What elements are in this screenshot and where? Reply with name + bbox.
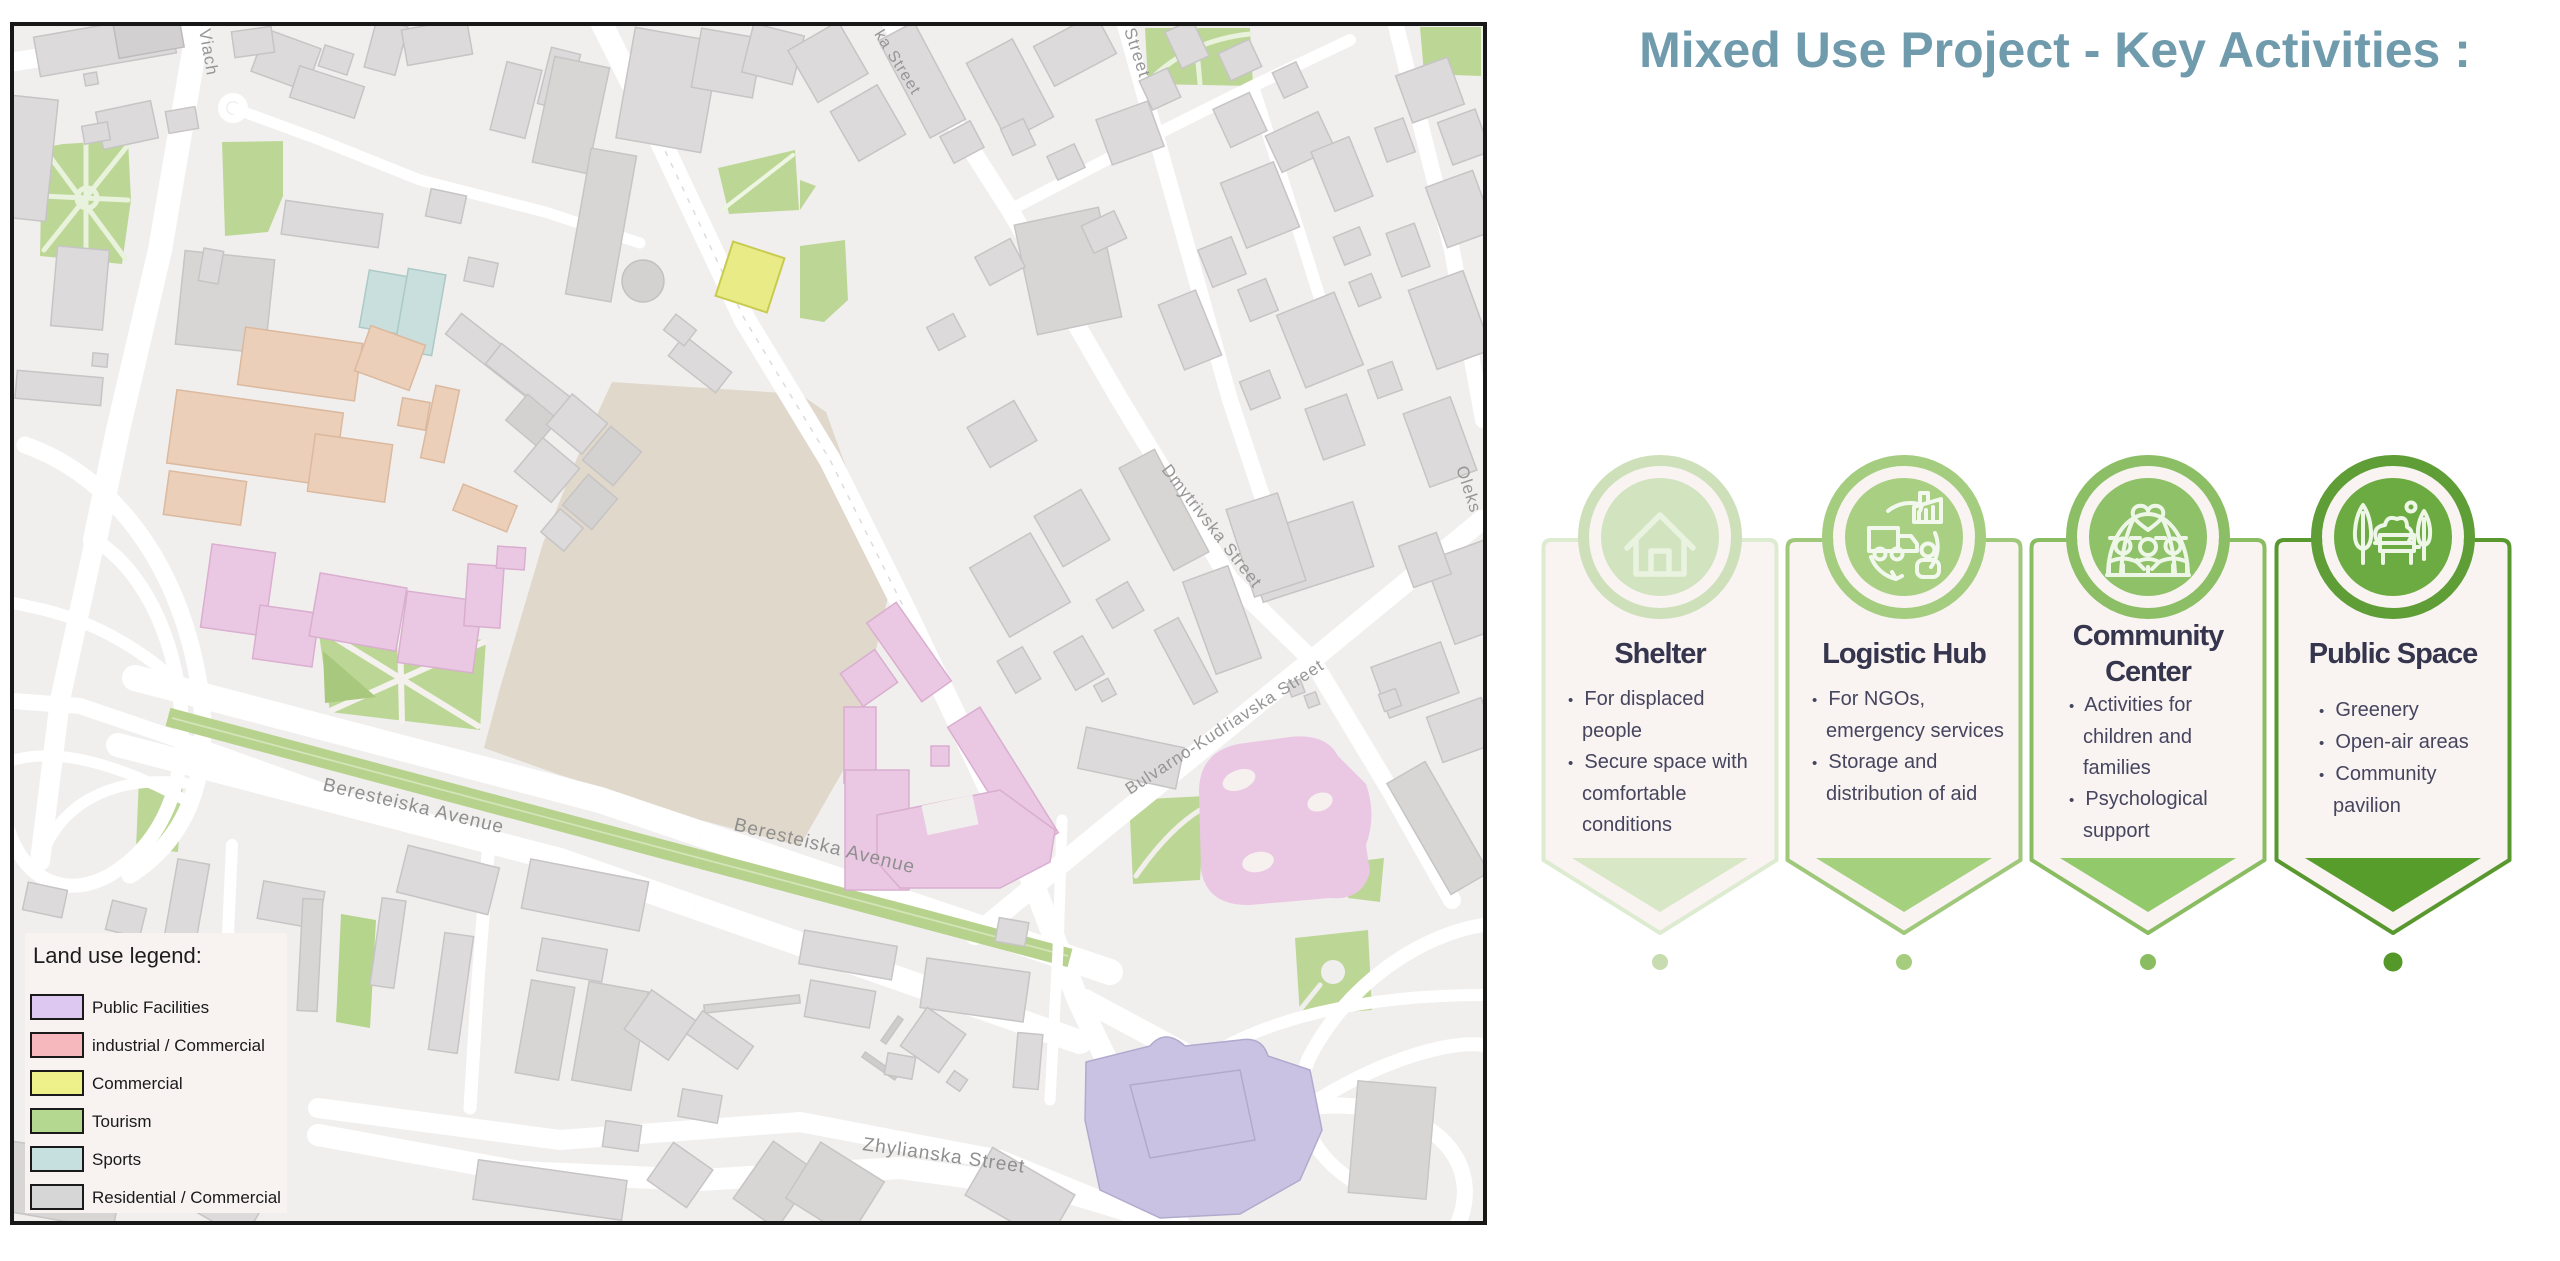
svg-text:Residential / Commercial: Residential / Commercial bbox=[92, 1188, 281, 1207]
svg-text:Commercial: Commercial bbox=[92, 1074, 183, 1093]
svg-text:Land use legend:: Land use legend: bbox=[33, 943, 202, 968]
svg-text:Sports: Sports bbox=[92, 1150, 141, 1169]
svg-text:Public Facilities: Public Facilities bbox=[92, 998, 209, 1017]
svg-text:Tourism: Tourism bbox=[92, 1112, 152, 1131]
svg-text:industrial / Commercial: industrial / Commercial bbox=[92, 1036, 265, 1055]
